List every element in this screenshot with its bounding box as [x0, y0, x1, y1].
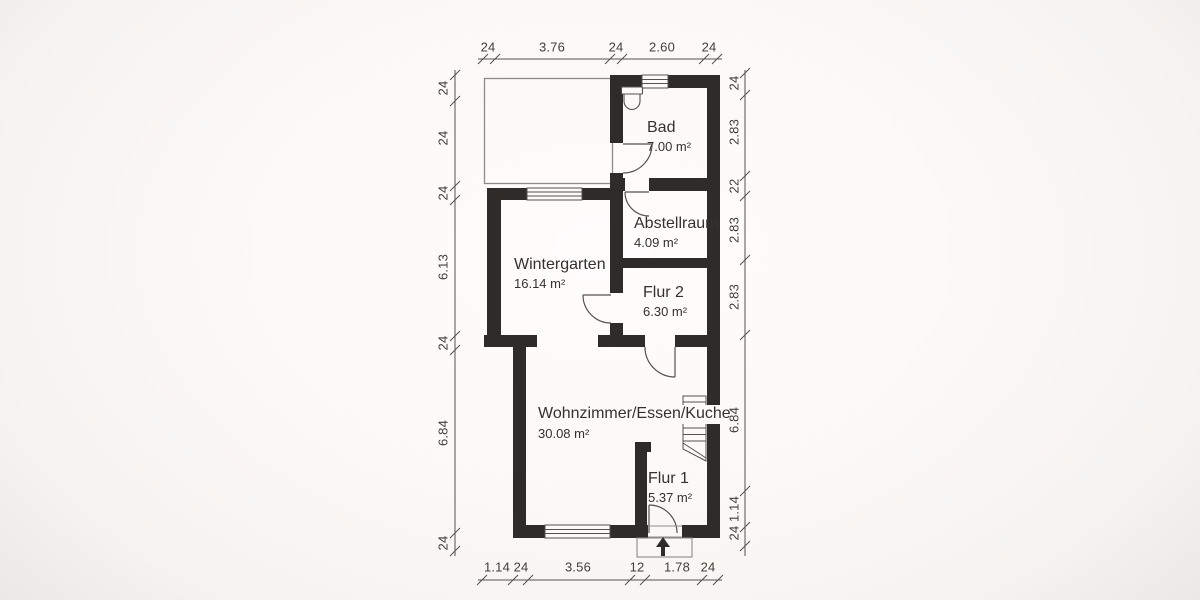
wall-segment: [682, 525, 720, 538]
room-label-bad: Bad 7.00 m²: [647, 119, 691, 154]
dim-label-left-2: 24: [437, 186, 450, 201]
wall-segment: [513, 525, 545, 538]
dim-label-right-3: 2.83: [728, 217, 741, 243]
wall-segment: [582, 188, 623, 200]
room-label-abstellraum: Abstellraum 4.09 m²: [634, 215, 718, 250]
dim-label-right-4: 2.83: [728, 284, 741, 310]
window: [545, 525, 610, 538]
room-name: Bad: [647, 119, 691, 137]
room-area: 5.37 m²: [648, 491, 692, 505]
wall-segment: [675, 335, 707, 347]
dim-label-left-6: 24: [437, 536, 450, 551]
dim-label-top-2: 24: [609, 41, 624, 54]
dim-label-right-6: 1.14: [728, 496, 741, 522]
dim-label-left-0: 24: [437, 81, 450, 96]
door-swing-abstellraum: [625, 192, 649, 216]
room-area: 30.08 m²: [538, 427, 733, 441]
dim-label-right-0: 24: [728, 76, 741, 91]
room-area: 7.00 m²: [647, 140, 691, 154]
room-name: Flur 1: [648, 470, 692, 488]
dim-label-left-4: 24: [437, 336, 450, 351]
wall-segment: [487, 188, 501, 347]
room-label-wintergarten: Wintergarten 16.14 m²: [514, 256, 606, 291]
room-name: Flur 2: [643, 284, 687, 302]
wall-segment: [610, 75, 623, 143]
room-label-flur2: Flur 2 6.30 m²: [643, 284, 687, 319]
dim-label-right-2: 22: [728, 179, 741, 194]
window: [642, 75, 668, 88]
dim-label-bottom-0: 1.14: [484, 561, 510, 574]
dim-label-right-7: 24: [728, 526, 741, 541]
door-swing-entrance: [648, 505, 682, 537]
window: [527, 188, 582, 200]
dim-label-bottom-2: 3.56: [565, 561, 591, 574]
door-swing-wohnzimmer: [645, 347, 675, 377]
dim-label-top-1: 3.76: [539, 41, 565, 54]
floorplan-canvas: Bad 7.00 m² Abstellraum 4.09 m² Winterga…: [0, 0, 1200, 600]
wall-segment: [635, 442, 651, 452]
wall-segment: [610, 258, 707, 268]
wall-segment: [707, 75, 720, 538]
room-area: 4.09 m²: [634, 236, 718, 250]
floorplan-drawing: [0, 0, 1200, 600]
terrace-outline: [485, 79, 613, 184]
dim-label-left-3: 6.13: [437, 254, 450, 280]
toilet-icon: [622, 87, 643, 110]
room-label-flur1: Flur 1 5.37 m²: [648, 470, 692, 505]
dim-label-left-5: 6.84: [437, 420, 450, 446]
dim-label-bottom-5: 24: [701, 561, 716, 574]
room-area: 6.30 m²: [643, 305, 687, 319]
wall-segment: [635, 442, 647, 525]
wall-segment: [610, 525, 648, 538]
dim-label-right-5: 6.84: [728, 407, 741, 433]
dim-label-left-1: 24: [437, 131, 450, 146]
door-swing-flur2: [583, 295, 611, 323]
room-label-wohnzimmer: Wohnzimmer/Essen/Kuche 30.08 m²: [538, 405, 733, 441]
room-name: Wintergarten: [514, 256, 606, 274]
room-area: 16.14 m²: [514, 277, 606, 291]
wall-segment: [487, 188, 527, 200]
entrance-arrow-icon: [656, 537, 670, 556]
dim-label-bottom-3: 12: [630, 561, 645, 574]
room-name: Wohnzimmer/Essen/Kuche: [538, 405, 733, 424]
dim-label-top-0: 24: [481, 41, 496, 54]
dim-label-top-3: 2.60: [649, 41, 675, 54]
dim-label-bottom-4: 1.78: [664, 561, 690, 574]
dim-label-top-4: 24: [702, 41, 717, 54]
dim-label-right-1: 2.83: [728, 119, 741, 145]
wall-segment: [513, 347, 526, 525]
wall-segment: [598, 335, 645, 347]
wall-segment: [649, 178, 707, 191]
room-name: Abstellraum: [634, 215, 718, 233]
dim-label-bottom-1: 24: [514, 561, 529, 574]
